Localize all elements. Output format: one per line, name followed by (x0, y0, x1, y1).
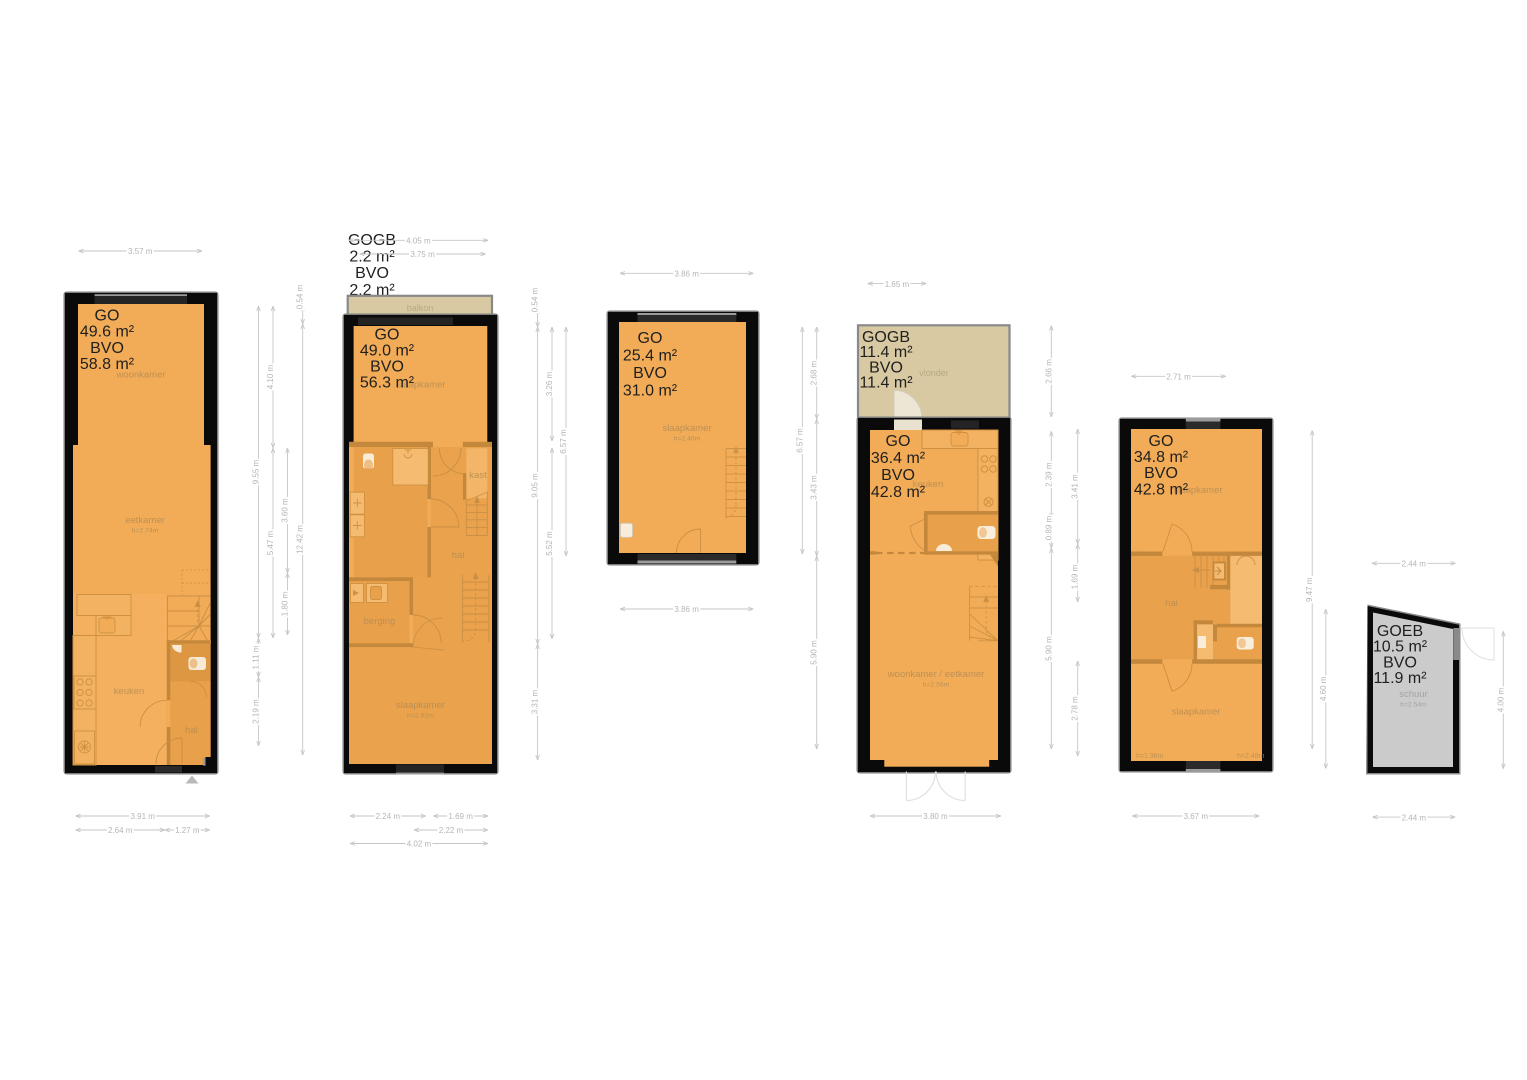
svg-text:GO: GO (95, 308, 120, 325)
svg-text:h=2.46m: h=2.46m (674, 436, 701, 443)
svg-text:9.05 m: 9.05 m (531, 473, 540, 498)
svg-text:11.9 m²: 11.9 m² (1373, 670, 1427, 687)
svg-text:2.22 m: 2.22 m (439, 826, 464, 835)
svg-text:11.4 m²: 11.4 m² (859, 375, 913, 392)
svg-text:GO: GO (886, 433, 911, 450)
svg-text:1.27 m: 1.27 m (175, 826, 200, 835)
svg-text:5.90 m: 5.90 m (810, 640, 819, 665)
svg-text:schuur: schuur (1399, 689, 1428, 700)
svg-text:42.8 m²: 42.8 m² (1134, 481, 1189, 498)
svg-text:49.0 m²: 49.0 m² (360, 343, 415, 360)
svg-text:0.54 m: 0.54 m (296, 284, 305, 309)
svg-text:58.8 m²: 58.8 m² (80, 356, 135, 373)
svg-text:hal: hal (452, 550, 465, 561)
svg-text:3.60 m: 3.60 m (281, 498, 290, 523)
svg-text:2.2 m²: 2.2 m² (349, 249, 395, 266)
svg-text:slaapkamer: slaapkamer (662, 423, 711, 434)
svg-text:10.5 m²: 10.5 m² (1373, 639, 1428, 656)
svg-text:BVO: BVO (370, 359, 404, 376)
svg-text:1.65 m: 1.65 m (885, 280, 910, 289)
svg-text:slaapkamer: slaapkamer (1171, 707, 1220, 718)
svg-text:3.91 m: 3.91 m (130, 812, 155, 821)
svg-text:3.41 m: 3.41 m (1071, 474, 1080, 499)
svg-text:GOEB: GOEB (1377, 623, 1423, 640)
svg-text:4.60 m: 4.60 m (1319, 676, 1328, 701)
svg-text:56.3 m²: 56.3 m² (360, 375, 415, 392)
svg-text:3.26 m: 3.26 m (545, 371, 554, 396)
svg-text:balkon: balkon (407, 303, 434, 313)
svg-text:2.64 m: 2.64 m (108, 826, 133, 835)
svg-text:BVO: BVO (1383, 654, 1417, 671)
svg-text:h=2.48m: h=2.48m (1237, 753, 1265, 760)
svg-text:2.68 m: 2.68 m (810, 360, 819, 385)
svg-text:GO: GO (638, 330, 663, 347)
svg-text:49.6 m²: 49.6 m² (80, 324, 135, 341)
svg-text:kast: kast (469, 470, 487, 481)
svg-text:9.47 m: 9.47 m (1305, 577, 1314, 602)
svg-text:h=2.56m: h=2.56m (923, 682, 950, 689)
svg-text:1.11 m: 1.11 m (252, 645, 261, 669)
svg-text:2.39 m: 2.39 m (1044, 462, 1053, 487)
svg-text:keuken: keuken (114, 686, 145, 697)
svg-text:4.10 m: 4.10 m (266, 364, 275, 389)
svg-text:3.75 m: 3.75 m (410, 250, 435, 259)
svg-text:h=2.62m: h=2.62m (407, 713, 434, 720)
svg-text:2.71 m: 2.71 m (1166, 373, 1191, 382)
svg-text:2.78 m: 2.78 m (1071, 696, 1080, 721)
svg-text:BVO: BVO (1144, 465, 1178, 482)
svg-text:1.80 m: 1.80 m (281, 591, 290, 616)
svg-text:BVO: BVO (355, 265, 389, 282)
svg-text:5.47 m: 5.47 m (266, 530, 275, 555)
svg-text:2.44 m: 2.44 m (1402, 813, 1427, 822)
svg-text:6.57 m: 6.57 m (795, 428, 804, 453)
svg-text:BVO: BVO (881, 467, 915, 484)
svg-text:hal: hal (1165, 598, 1178, 609)
svg-text:2.44 m: 2.44 m (1402, 560, 1427, 569)
svg-text:6.57 m: 6.57 m (559, 429, 568, 454)
svg-text:31.0 m²: 31.0 m² (623, 383, 678, 400)
svg-text:1.69 m: 1.69 m (1071, 564, 1080, 589)
svg-text:3.43 m: 3.43 m (810, 475, 819, 500)
svg-text:5.52 m: 5.52 m (545, 531, 554, 556)
svg-text:25.4 m²: 25.4 m² (623, 348, 678, 365)
svg-text:h=2.74m: h=2.74m (132, 528, 159, 535)
svg-text:4.02 m: 4.02 m (407, 840, 432, 849)
svg-text:2.19 m: 2.19 m (252, 699, 261, 724)
svg-text:h=1.98m: h=1.98m (1136, 753, 1164, 760)
svg-text:5.90 m: 5.90 m (1044, 636, 1053, 661)
svg-text:GO: GO (375, 327, 400, 344)
svg-text:3.31 m: 3.31 m (531, 689, 540, 714)
svg-text:vlonder: vlonder (919, 368, 949, 378)
svg-text:42.8 m²: 42.8 m² (871, 484, 926, 501)
svg-text:eetkamer: eetkamer (125, 515, 165, 526)
svg-text:3.86 m: 3.86 m (674, 605, 699, 614)
svg-text:3.57 m: 3.57 m (128, 247, 153, 256)
svg-text:12.42 m: 12.42 m (296, 525, 305, 554)
svg-text:4.05 m: 4.05 m (406, 237, 431, 246)
svg-text:36.4 m²: 36.4 m² (871, 450, 926, 467)
svg-text:0.54 m: 0.54 m (531, 287, 540, 312)
svg-text:9.55 m: 9.55 m (252, 459, 261, 484)
svg-text:slaapkamer: slaapkamer (396, 700, 445, 711)
svg-text:h=2.54m: h=2.54m (1400, 702, 1427, 709)
svg-text:2.66 m: 2.66 m (1044, 359, 1053, 384)
svg-text:3.80 m: 3.80 m (923, 812, 948, 821)
svg-text:3.86 m: 3.86 m (674, 270, 699, 279)
svg-text:GO: GO (1149, 433, 1174, 450)
svg-text:1.69 m: 1.69 m (448, 812, 473, 821)
svg-text:berging: berging (364, 616, 396, 627)
svg-text:BVO: BVO (633, 365, 667, 382)
svg-text:34.8 m²: 34.8 m² (1134, 449, 1189, 466)
svg-text:3.67 m: 3.67 m (1184, 812, 1209, 821)
svg-text:4.00 m: 4.00 m (1496, 687, 1505, 712)
svg-text:0.89 m: 0.89 m (1044, 515, 1053, 540)
svg-text:woonkamer / eetkamer: woonkamer / eetkamer (887, 669, 985, 680)
svg-text:hal: hal (185, 725, 198, 736)
svg-text:2.24 m: 2.24 m (376, 812, 401, 821)
svg-text:BVO: BVO (90, 340, 124, 357)
